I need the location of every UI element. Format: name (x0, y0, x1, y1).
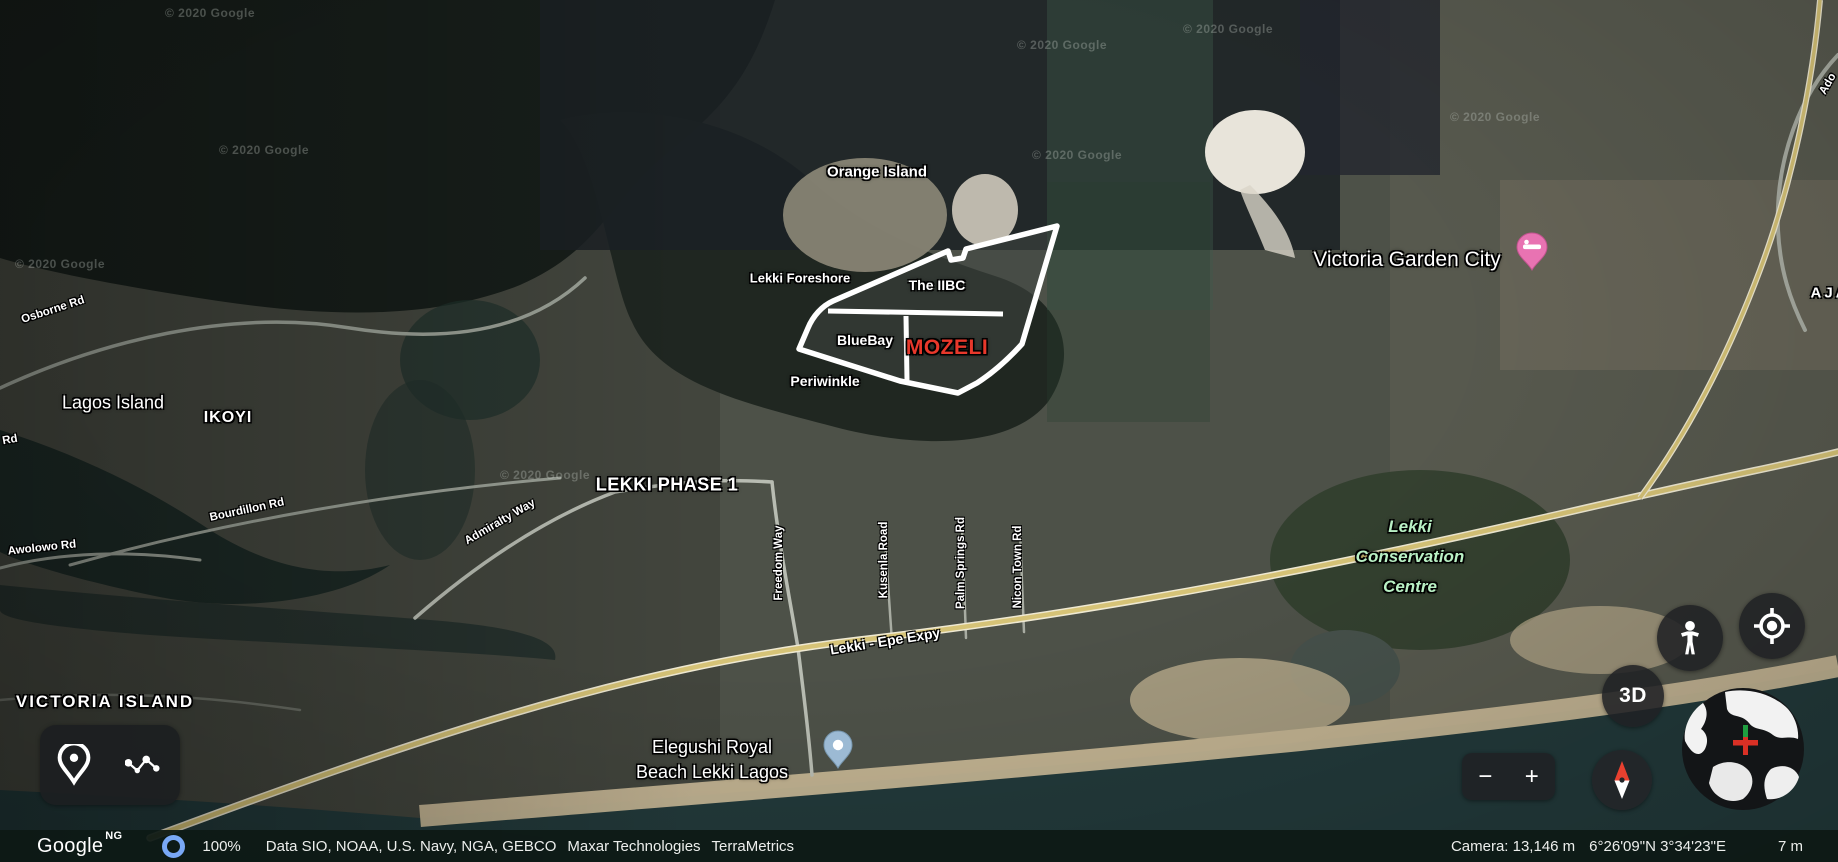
my-location-icon (1752, 606, 1792, 646)
label-elegushi-royal-beach[interactable]: Elegushi Royal Beach Lekki Lagos (636, 735, 788, 785)
label-lekki-conservation-centre[interactable]: Lekki Conservation Centre (1356, 512, 1465, 602)
road-ado: Ado (1817, 71, 1838, 96)
status-bar: GoogleNG 100% Data SIO, NOAA, U.S. Navy,… (0, 830, 1838, 862)
label-orange-island[interactable]: Orange Island (827, 164, 927, 181)
copyright-watermark: © 2020 Google (15, 257, 105, 271)
label-lagos-island[interactable]: Lagos Island (62, 393, 164, 414)
compass-button[interactable] (1592, 750, 1652, 810)
terrain-elevation: 7 m (1778, 838, 1803, 855)
copyright-watermark: © 2020 Google (500, 468, 590, 482)
zoom-in-button[interactable]: + (1512, 753, 1552, 800)
measure-distance-button[interactable] (125, 753, 163, 777)
pegman-button[interactable] (1657, 605, 1723, 671)
label-aja[interactable]: AJA (1810, 285, 1838, 302)
road-nicon-town-rd: Nicon Town Rd (1012, 526, 1024, 609)
copyright-watermark: © 2020 Google (165, 6, 255, 20)
stream-progress-ring (162, 835, 185, 858)
road-rd-partial: Rd (1, 433, 18, 447)
copyright-watermark: © 2020 Google (1017, 38, 1107, 52)
road-admiralty-way: Admiralty Way (463, 497, 538, 547)
label-ikoyi[interactable]: IKOYI (204, 409, 253, 427)
road-bourdillon-rd: Bourdillon Rd (209, 496, 286, 524)
region-code: NG (105, 830, 122, 842)
3d-label: 3D (1619, 684, 1647, 708)
google-logo: GoogleNG (37, 835, 122, 858)
copyright-watermark: © 2020 Google (1450, 110, 1540, 124)
3d-toggle-button[interactable]: 3D (1602, 665, 1664, 727)
label-mozeli[interactable]: MOZELI (906, 336, 988, 360)
google-earth-app: Orange IslandLekki ForeshoreThe IIBCBlue… (0, 0, 1838, 862)
zoom-out-button[interactable]: − (1465, 753, 1505, 800)
attribution-terrametrics: TerraMetrics (712, 838, 795, 855)
cursor-coordinates: 6°26'09"N 3°34'23"E (1589, 838, 1726, 855)
camera-readout: Camera: 13,146 m 6°26'09"N 3°34'23"E 7 m (1451, 838, 1803, 855)
zoom-control: − + (1462, 753, 1555, 800)
add-placemark-button[interactable] (57, 744, 91, 786)
label-victoria-garden-city[interactable]: Victoria Garden City (1313, 248, 1501, 272)
drawing-tools-panel (40, 725, 180, 805)
pegman-icon (1677, 620, 1703, 656)
globe-overview-button[interactable] (1682, 688, 1804, 815)
label-victoria-island[interactable]: VICTORIA ISLAND (16, 692, 194, 712)
copyright-watermark: © 2020 Google (219, 143, 309, 157)
label-periwinkle[interactable]: Periwinkle (790, 373, 859, 389)
road-osborne-rd: Osborne Rd (20, 294, 86, 326)
label-the-iibc[interactable]: The IIBC (909, 277, 966, 293)
label-lekki-phase-1[interactable]: LEKKI PHASE 1 (596, 475, 739, 496)
map-labels-layer: Orange IslandLekki ForeshoreThe IIBCBlue… (0, 0, 1838, 862)
copyright-watermark: © 2020 Google (1032, 148, 1122, 162)
label-bluebay[interactable]: BlueBay (837, 332, 893, 348)
camera-altitude: Camera: 13,146 m (1451, 838, 1575, 855)
road-awolowo-rd: Awolowo Rd (7, 538, 77, 557)
place-pin-elegushi-beach[interactable] (822, 730, 854, 775)
attribution-maxar: Maxar Technologies (567, 838, 700, 855)
placemark-pin-icon (57, 744, 91, 786)
label-lekki-foreshore[interactable]: Lekki Foreshore (750, 271, 850, 286)
measure-path-icon (125, 753, 163, 777)
lodging-pin-victoria-garden-city[interactable] (1515, 232, 1549, 277)
stream-progress-percent: 100% (202, 838, 240, 855)
earth-globe-icon (1682, 688, 1804, 810)
road-freedom-way: Freedom Way (773, 526, 785, 601)
road-lekki-epe-expy: Lekki - Epe Expy (829, 624, 941, 657)
attribution-data-providers: Data SIO, NOAA, U.S. Navy, NGA, GEBCO (266, 838, 557, 855)
my-location-button[interactable] (1739, 593, 1805, 659)
compass-north-icon (1600, 758, 1644, 802)
road-palm-springs-rd: Palm Springs Rd (955, 517, 967, 609)
road-kusenla-road: Kusenla Road (878, 522, 890, 599)
copyright-watermark: © 2020 Google (1183, 22, 1273, 36)
